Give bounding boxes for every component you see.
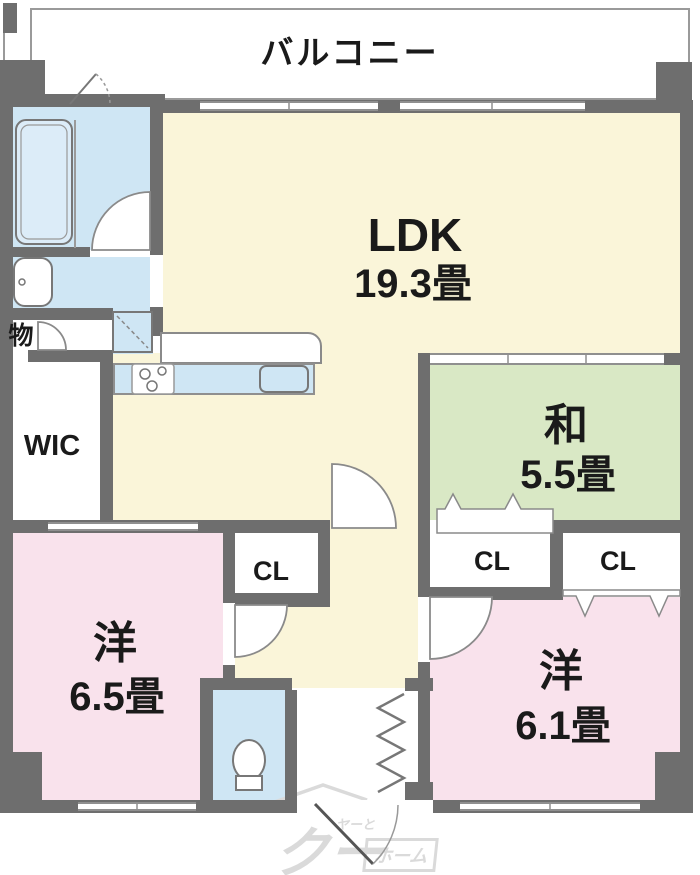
balcony-label: バルコニー bbox=[150, 36, 550, 69]
door-arc-western-1 bbox=[235, 605, 287, 657]
bathtub-icon bbox=[16, 120, 72, 244]
door-arc-storage bbox=[38, 322, 66, 350]
washbasin-icon bbox=[14, 258, 52, 306]
sliding-door-japanese bbox=[437, 494, 553, 533]
toilet-icon bbox=[233, 740, 265, 790]
stove-icon bbox=[132, 364, 174, 394]
japanese-room-label: 和 bbox=[526, 404, 606, 448]
wic-label: WIC bbox=[12, 432, 92, 461]
japanese-room-size: 5.5畳 bbox=[488, 455, 648, 495]
closet-right-label: CL bbox=[588, 548, 648, 575]
closet-mid-label: CL bbox=[241, 558, 301, 585]
floor-plan: クー ヤーと ホーム bbox=[0, 0, 700, 875]
sliding-door-closet-right bbox=[563, 590, 680, 616]
door-swing-balcony bbox=[70, 74, 110, 104]
western-room-1-label: 洋 bbox=[75, 622, 155, 666]
western-room-2-label: 洋 bbox=[521, 650, 601, 694]
kitchen-sink-icon bbox=[260, 366, 308, 392]
ldk-label: LDK bbox=[330, 212, 500, 258]
storage-label: 物 bbox=[4, 324, 38, 349]
door-arc-bathroom bbox=[92, 192, 150, 250]
door-arc-western-2 bbox=[430, 597, 492, 659]
entrance-door bbox=[315, 804, 398, 864]
western-room-1-size: 6.5畳 bbox=[27, 677, 207, 717]
closet-left-label: CL bbox=[462, 548, 522, 575]
door-arc-kitchen bbox=[332, 464, 396, 528]
ldk-size: 19.3畳 bbox=[318, 264, 508, 304]
washer-pad-icon bbox=[113, 312, 152, 352]
western-room-2-size: 6.1畳 bbox=[473, 706, 653, 746]
shoe-cabinet-accordion bbox=[378, 694, 404, 792]
